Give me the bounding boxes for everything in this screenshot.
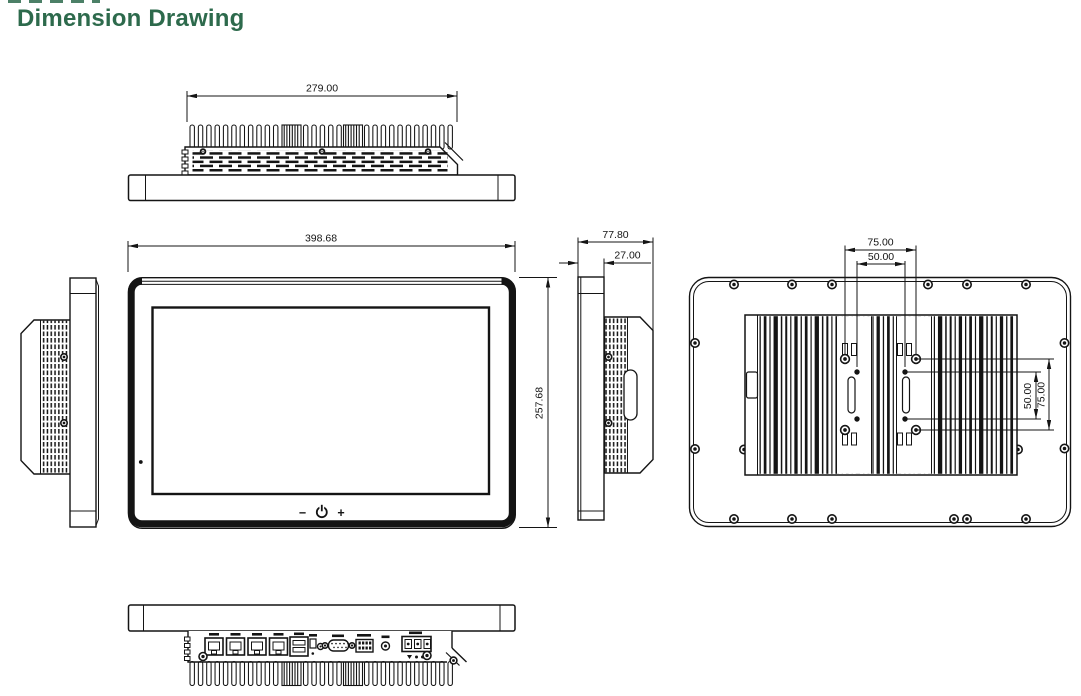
dim-top-width: 279.00: [306, 83, 338, 95]
panel-slab: [129, 175, 516, 201]
handle-slot: [624, 370, 637, 420]
brightness-down-button[interactable]: −: [299, 506, 306, 520]
display-area: [153, 308, 490, 495]
side-slot: [747, 372, 758, 398]
heatsink-fins: [190, 125, 452, 149]
side-view-right: 77.80 27.00: [559, 229, 653, 520]
dim-vesa-h-inner: 50.00: [868, 251, 894, 263]
dim-vesa-h-outer: 75.00: [867, 237, 893, 249]
dim-depth-panel: 27.00: [614, 250, 640, 262]
io-terminal-block: [356, 640, 373, 653]
usb-port: [290, 637, 308, 656]
brightness-up-button[interactable]: +: [337, 506, 344, 520]
side-view-left: [21, 278, 99, 527]
rear-view: 75.00 50.00 50.00 75.00: [690, 237, 1071, 527]
dim-front-height: 257.68: [534, 387, 546, 419]
panel-slab: [70, 278, 96, 527]
sensor-dot: [139, 460, 143, 464]
bottom-view: [129, 605, 516, 686]
dim-vesa-v-outer: 75.00: [1036, 382, 1048, 408]
heatsink-fins: [190, 662, 452, 686]
panel-slab: [578, 277, 604, 520]
dimension-drawing-canvas: 279.00 398.68 257.68 − +: [0, 0, 1081, 696]
heatsink-fins: [41, 321, 69, 474]
dim-depth-total: 77.80: [602, 229, 628, 241]
front-view: 398.68 257.68 − +: [128, 233, 557, 529]
panel-slab: [129, 605, 516, 631]
top-view: 279.00: [129, 83, 516, 201]
dim-vesa-v-inner: 50.00: [1022, 383, 1034, 409]
round-connector: [382, 642, 390, 650]
dim-front-width: 398.68: [305, 233, 337, 245]
